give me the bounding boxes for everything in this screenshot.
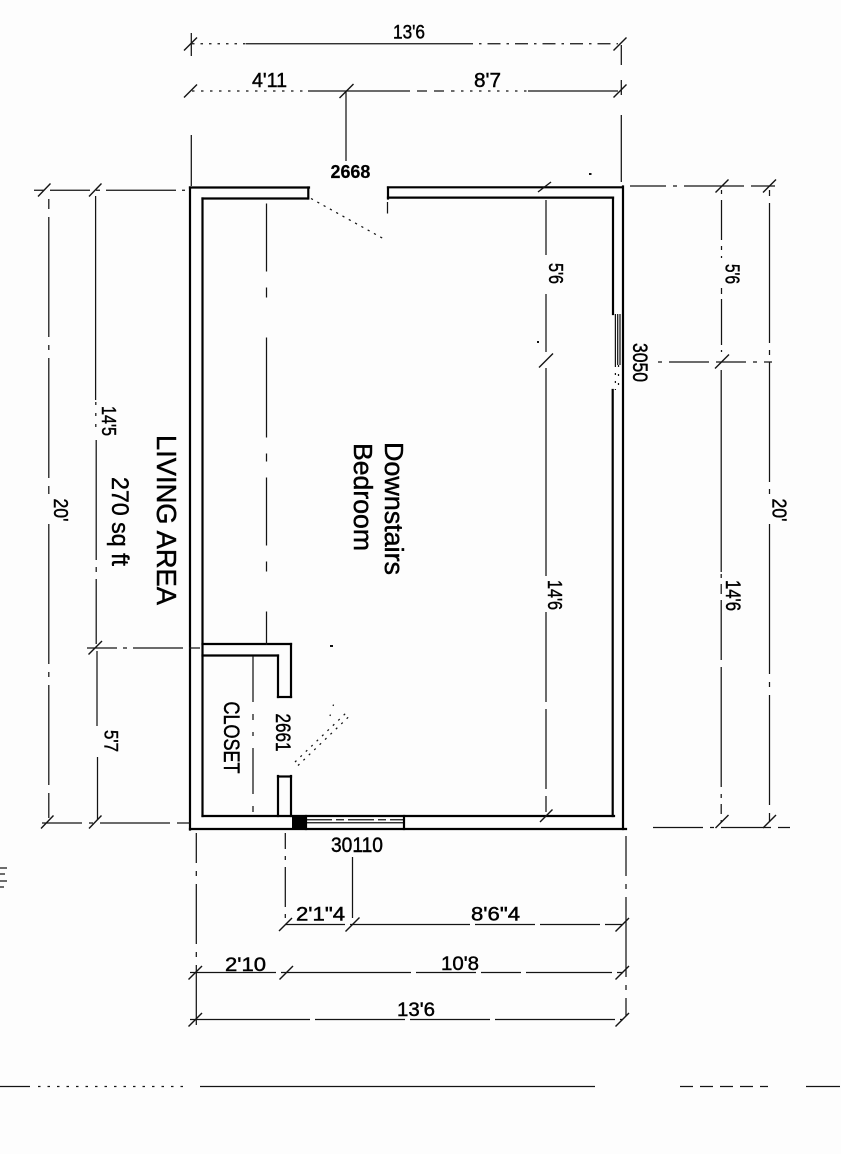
svg-text:2661: 2661: [271, 714, 294, 752]
svg-text:5'6: 5'6: [721, 264, 743, 284]
svg-text:5'6: 5'6: [544, 263, 566, 284]
svg-text:20': 20': [49, 499, 71, 522]
svg-text:4'11: 4'11: [252, 70, 287, 92]
svg-text:14'5: 14'5: [97, 406, 119, 436]
svg-text:3050: 3050: [628, 343, 651, 382]
svg-text:5'7: 5'7: [100, 730, 121, 752]
svg-text:14'6: 14'6: [543, 580, 566, 610]
svg-text:LIVING AREA: LIVING AREA: [151, 435, 182, 605]
svg-text:2'1"4: 2'1"4: [296, 905, 345, 926]
svg-text:10'8: 10'8: [441, 953, 479, 975]
svg-text:20': 20': [768, 499, 790, 522]
svg-text:14'6: 14'6: [721, 580, 744, 611]
svg-text:13'6: 13'6: [397, 999, 435, 1021]
svg-text:30110: 30110: [331, 834, 383, 857]
svg-text:270 sq ft: 270 sq ft: [106, 477, 133, 566]
svg-text:CLOSET: CLOSET: [219, 702, 244, 774]
svg-text:13'6: 13'6: [393, 23, 425, 44]
svg-text:8'6"4: 8'6"4: [471, 905, 520, 926]
svg-text:Bedroom: Bedroom: [348, 443, 376, 551]
svg-text:8'7: 8'7: [474, 70, 501, 92]
svg-text:Downstairs: Downstairs: [379, 442, 407, 575]
svg-text:2668: 2668: [331, 161, 371, 182]
